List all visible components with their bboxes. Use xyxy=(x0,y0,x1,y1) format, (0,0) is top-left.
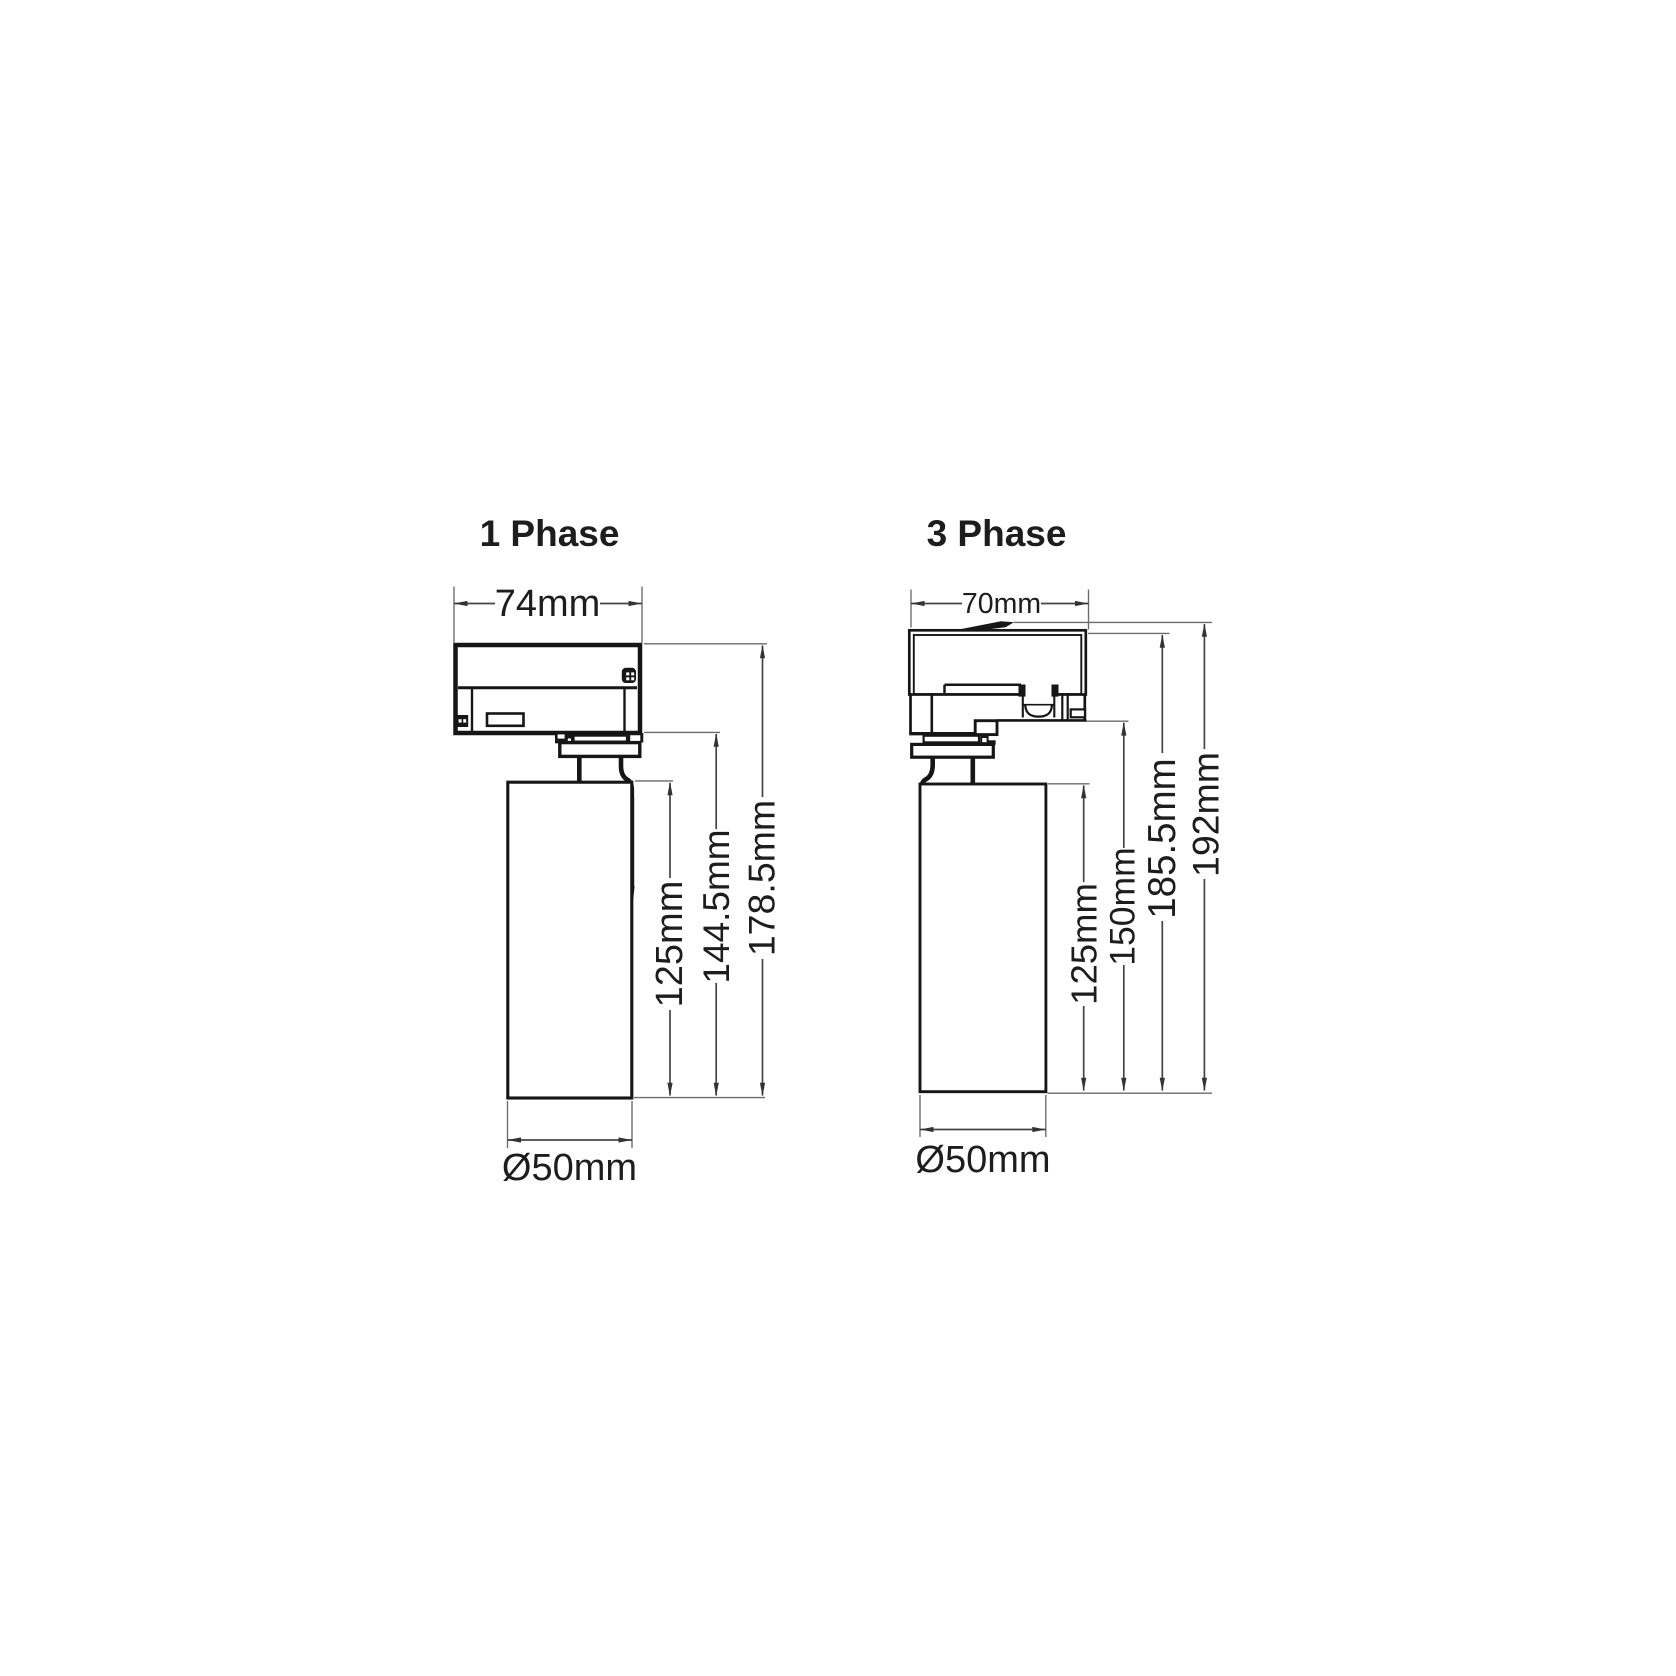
svg-text:178.5mm: 178.5mm xyxy=(741,800,783,956)
svg-text:70mm: 70mm xyxy=(962,588,1041,620)
svg-text:150mm: 150mm xyxy=(1103,847,1143,965)
svg-text:3 Phase: 3 Phase xyxy=(927,513,1067,554)
svg-text:74mm: 74mm xyxy=(495,583,601,625)
svg-text:Ø50mm: Ø50mm xyxy=(915,1139,1050,1181)
svg-text:125mm: 125mm xyxy=(649,881,691,1008)
svg-text:1 Phase: 1 Phase xyxy=(480,513,620,554)
svg-text:185.5mm: 185.5mm xyxy=(1141,758,1184,919)
svg-text:192mm: 192mm xyxy=(1185,752,1227,877)
svg-text:144.5mm: 144.5mm xyxy=(696,829,737,983)
svg-text:Ø50mm: Ø50mm xyxy=(502,1147,637,1189)
svg-text:125mm: 125mm xyxy=(1064,883,1105,1005)
